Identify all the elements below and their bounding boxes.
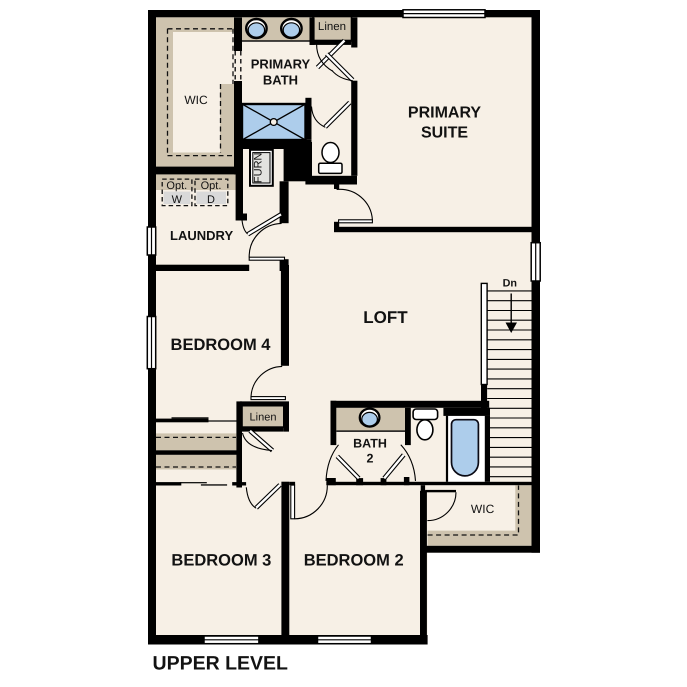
svg-text:Dn: Dn xyxy=(503,278,517,290)
svg-text:LAUNDRY: LAUNDRY xyxy=(170,228,233,243)
svg-text:BEDROOM 2: BEDROOM 2 xyxy=(304,552,404,570)
svg-text:BEDROOM 4: BEDROOM 4 xyxy=(171,336,272,354)
svg-text:LOFT: LOFT xyxy=(363,308,408,327)
svg-text:FURN: FURN xyxy=(252,152,264,183)
svg-text:Linen: Linen xyxy=(250,412,277,424)
svg-text:BEDROOM 3: BEDROOM 3 xyxy=(171,552,271,570)
svg-text:Opt.: Opt. xyxy=(201,180,222,192)
svg-text:PRIMARY: PRIMARY xyxy=(251,56,311,71)
svg-text:SUITE: SUITE xyxy=(421,125,468,142)
svg-text:D: D xyxy=(207,194,215,206)
svg-text:PRIMARY: PRIMARY xyxy=(408,105,482,122)
svg-text:Opt.: Opt. xyxy=(166,180,187,192)
svg-text:2: 2 xyxy=(367,452,374,466)
svg-text:W: W xyxy=(172,194,183,206)
svg-text:UPPER LEVEL: UPPER LEVEL xyxy=(153,653,289,675)
svg-text:BATH: BATH xyxy=(353,437,387,451)
svg-text:WIC: WIC xyxy=(471,502,495,516)
svg-text:BATH: BATH xyxy=(263,73,298,88)
svg-text:Linen: Linen xyxy=(318,21,346,33)
svg-text:WIC: WIC xyxy=(184,93,208,107)
